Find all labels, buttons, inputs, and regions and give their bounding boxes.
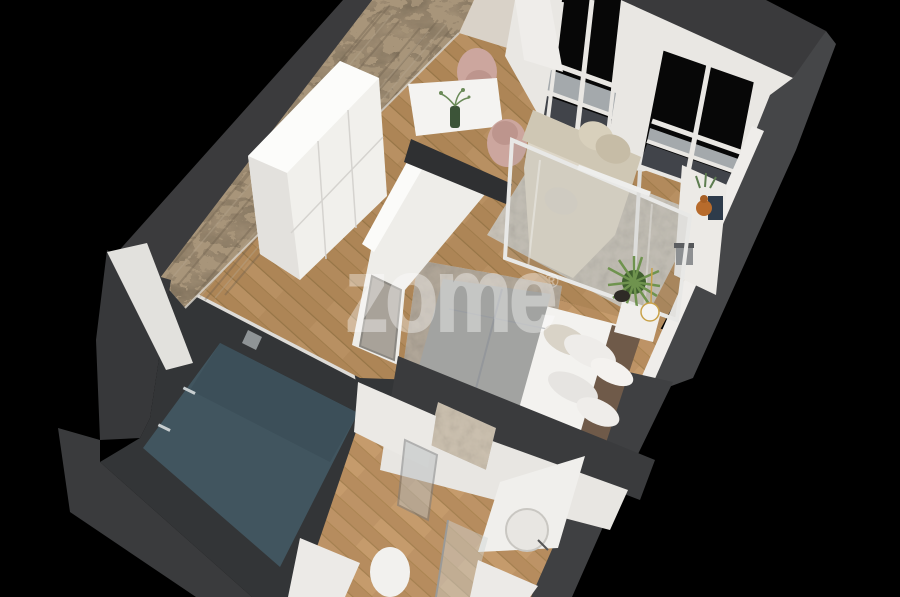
svg-text:®: ® [544, 271, 559, 293]
svg-text:zome: zome [345, 235, 555, 354]
